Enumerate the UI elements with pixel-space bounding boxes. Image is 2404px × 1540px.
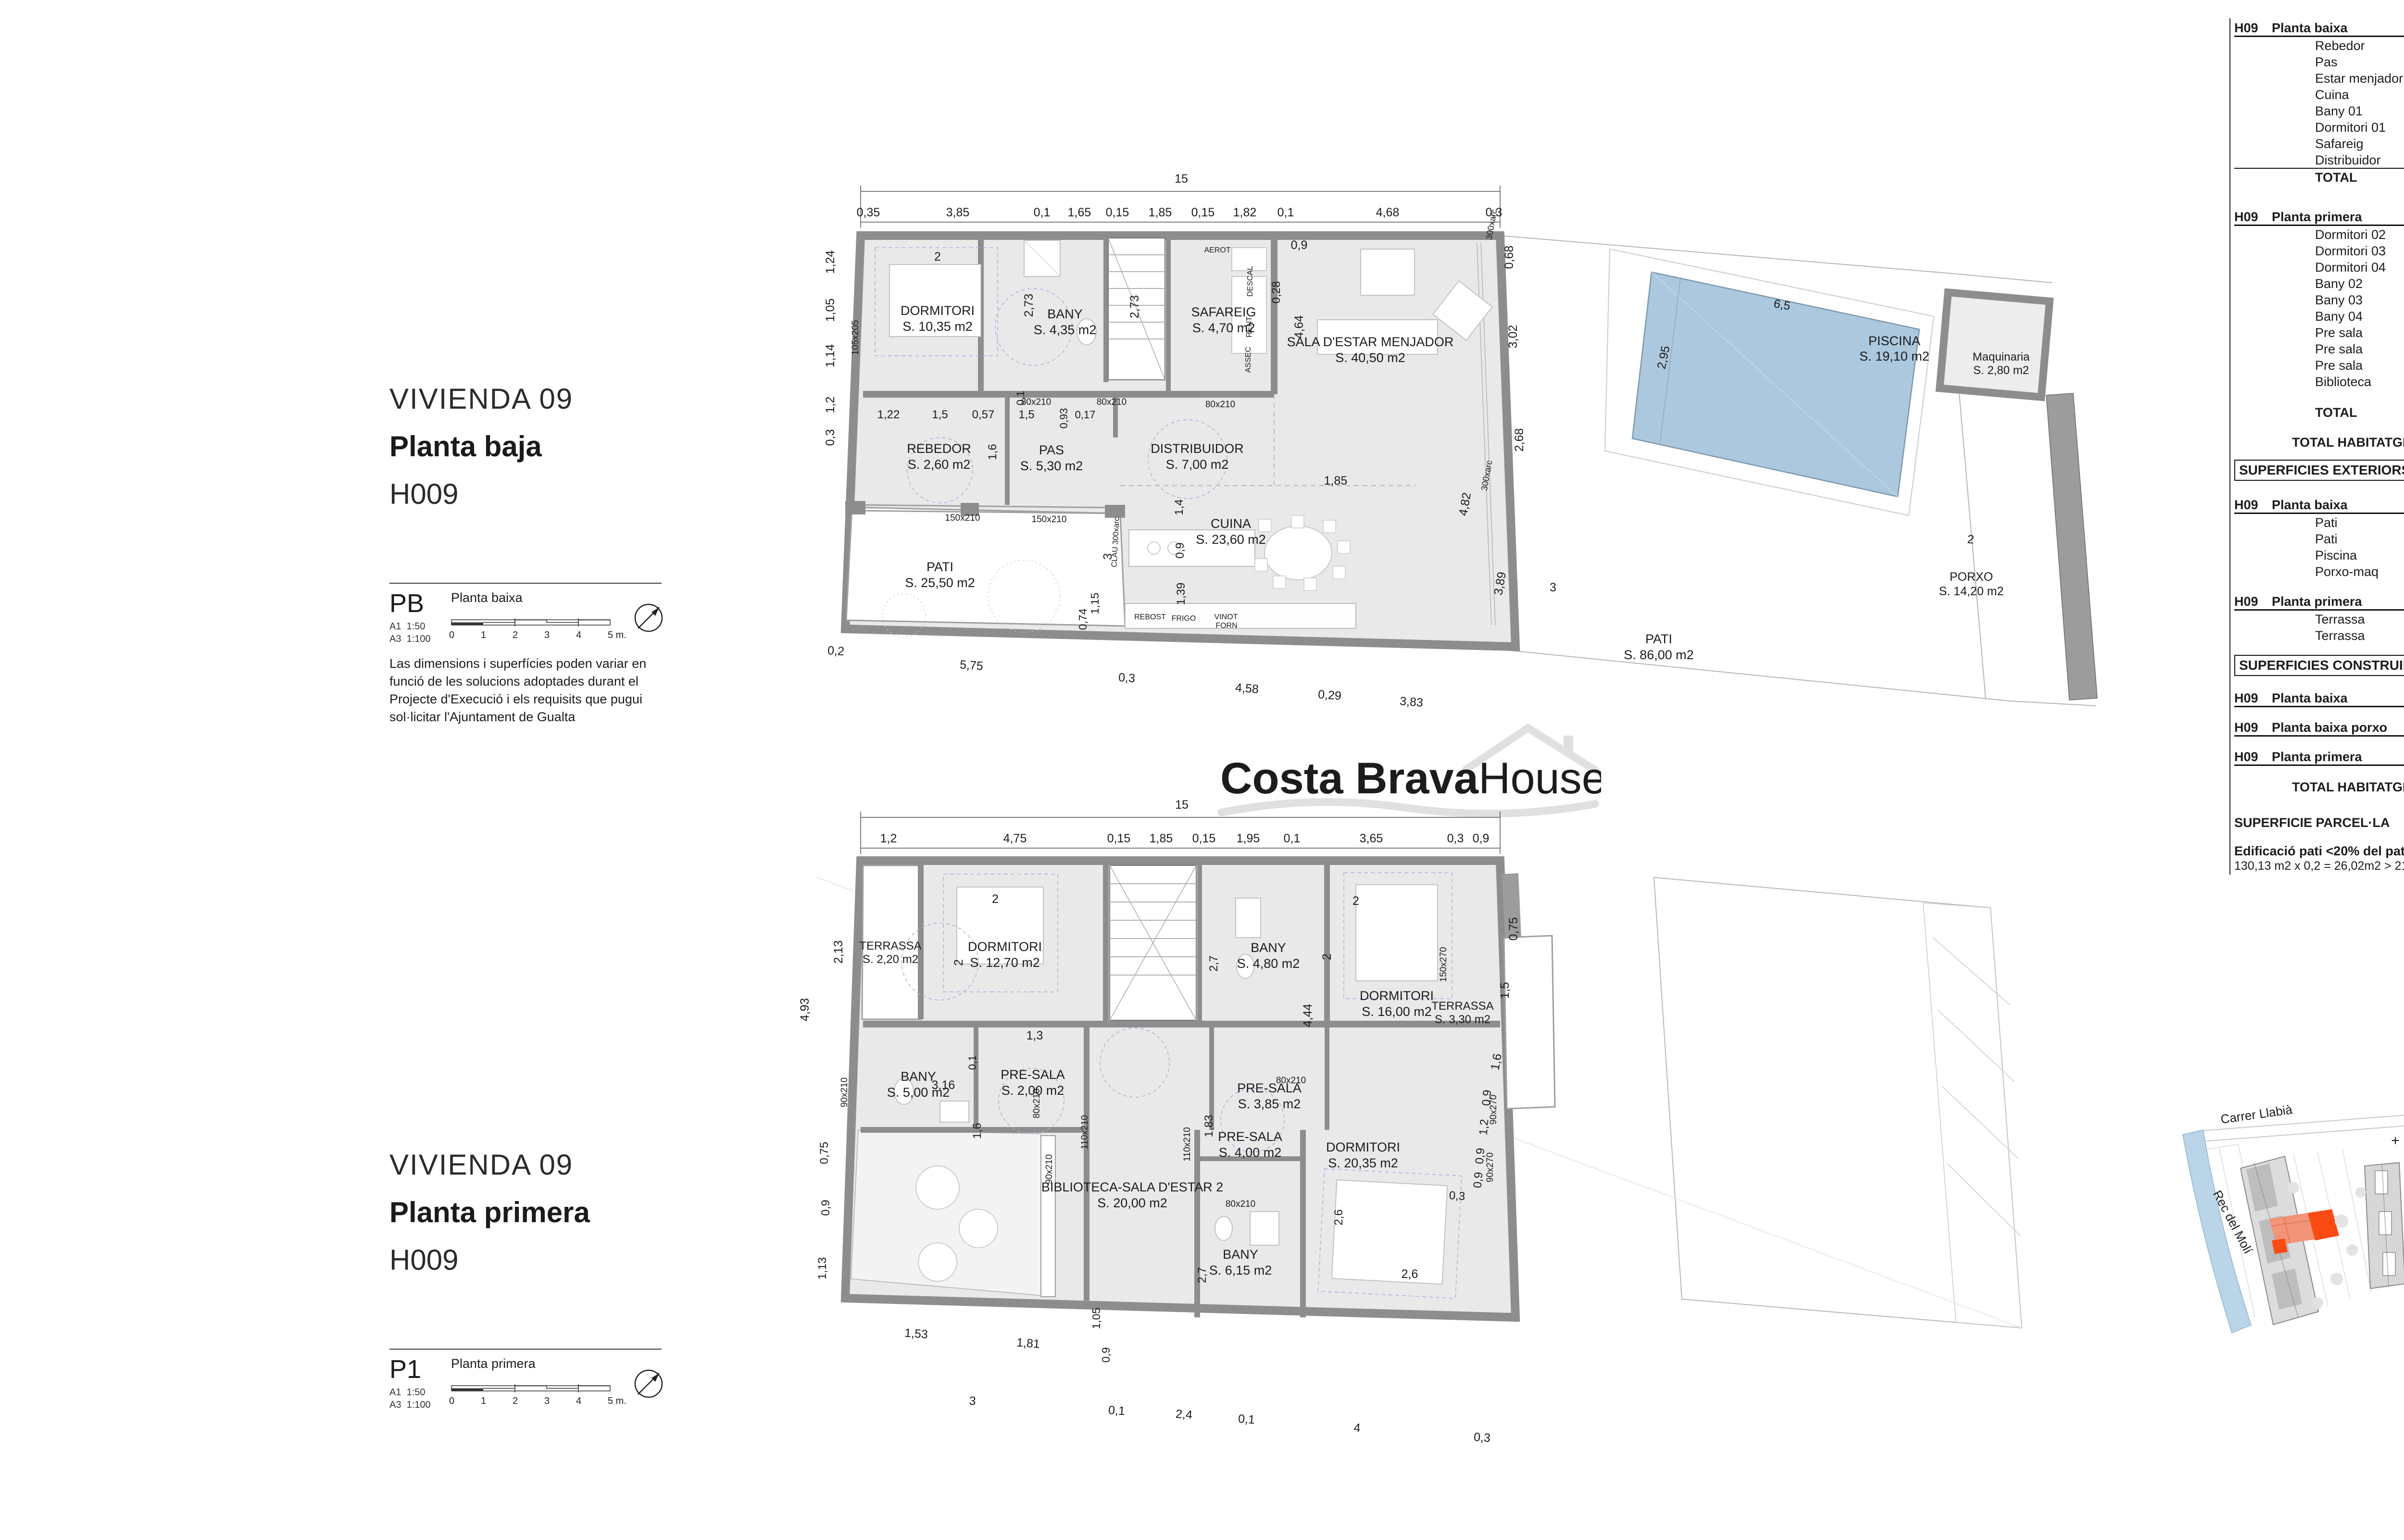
dim-label: 0,15	[1107, 832, 1131, 845]
room-label: DISTRIBUIDOR	[1151, 441, 1244, 456]
door-size-label: 80x210	[1021, 397, 1051, 407]
dim-label: 1,5	[932, 408, 948, 421]
dim-label: 1,13	[816, 1257, 829, 1280]
table-gap	[2234, 766, 2404, 778]
table-section-header: H09Planta baixa	[2234, 495, 2404, 514]
table-row: Porxo-maq17,00	[2234, 563, 2404, 579]
scale-tick: 1	[481, 1396, 486, 1407]
scale-bar	[451, 617, 614, 628]
table-section-header: H09Planta primera	[2234, 592, 2404, 611]
dim-label: 0,57	[972, 408, 995, 421]
floor-plan-planta-primera: TERRASSAS. 2,20 m2DORMITORIS. 12,70 m2BA…	[817, 793, 2116, 1466]
scale-a1-ratio: 1:50	[407, 621, 426, 632]
north-arrow-icon	[633, 1368, 664, 1400]
scale-name: Planta baixa	[451, 590, 523, 605]
window-size-label: 150x210	[1032, 514, 1067, 525]
table-gap	[2234, 830, 2404, 844]
dim-label: 4,64	[1292, 315, 1306, 339]
dim-label: 0,3	[1449, 1189, 1465, 1203]
dim-label: 1,83	[1202, 1115, 1215, 1138]
floor-plan-planta-baja: DORMITORIS. 10,35 m2BANYS. 4,35 m2SAFARE…	[817, 168, 2116, 726]
dim-label: 2	[934, 250, 941, 263]
dim-label: 2,73	[1022, 294, 1036, 317]
table-section-header: H09Planta baixa	[2234, 18, 2404, 37]
room-label: PRE-SALA	[1218, 1129, 1282, 1144]
room-area: S. 3,30 m2	[1435, 1013, 1490, 1026]
scale-tick: 5 m.	[608, 630, 626, 641]
room-area: S. 5,30 m2	[1020, 459, 1083, 473]
dim-label: 1,24	[824, 250, 837, 274]
window-size-label: 90x210	[1044, 1154, 1054, 1184]
dim-label: 1,4	[1173, 499, 1186, 515]
table-gap	[2234, 579, 2404, 592]
door-size-label: 80x210	[1097, 397, 1127, 407]
room-area: S. 16,00 m2	[1362, 1004, 1432, 1019]
info-block-planta-baja: VIVIENDA 09 Planta baja H009 PB Planta b…	[389, 382, 664, 739]
room-area: S. 6,15 m2	[1209, 1263, 1272, 1277]
unit-code: H009	[389, 1243, 664, 1277]
dim-label: 0,28	[1270, 281, 1283, 304]
dim-label: 0,3	[1473, 1430, 1491, 1445]
room-label: DORMITORI	[968, 939, 1042, 954]
dim-label: 3,65	[1360, 832, 1383, 845]
dim-label: 0,75	[1507, 917, 1520, 941]
scale-a1: A1	[389, 621, 401, 632]
dim-label: 1,2	[880, 832, 897, 845]
dim-label: 3	[1550, 581, 1556, 594]
room-label: PATI	[1645, 632, 1672, 646]
room-label: SALA D'ESTAR MENJADOR	[1287, 335, 1454, 349]
window-size-label: 150x270	[1439, 947, 1449, 982]
appliance-label: DESCAL	[1246, 266, 1254, 297]
dim-label: 4,75	[1003, 832, 1027, 845]
dim-label: 3,83	[1399, 694, 1424, 709]
scale-tick: 2	[513, 1396, 518, 1407]
unit-code: H009	[389, 477, 664, 511]
scale-tag: PB	[389, 588, 424, 618]
dim-label: 1,6	[971, 1123, 984, 1139]
table-built-area-row: H09Planta baixa porxo21,90	[2234, 718, 2404, 737]
room-label: CUINA	[1211, 516, 1251, 531]
room-area: S. 4,00 m2	[1219, 1145, 1282, 1160]
dim-label: 0,68	[1502, 246, 1516, 269]
room-label: PAS	[1039, 443, 1064, 457]
appliance-label: FORN	[1215, 622, 1237, 630]
table-gap	[2234, 450, 2404, 460]
window-size-label: 90x270	[1489, 1095, 1499, 1125]
room-label: PRE-SALA	[1001, 1067, 1065, 1082]
dim-label: 3	[969, 1394, 977, 1408]
door-size-label: 80x210	[1032, 1089, 1042, 1118]
table-built-area-row: H09Planta baixa123,65	[2234, 689, 2404, 707]
table-row: Pas5,30	[2234, 53, 2404, 70]
table-row: Terrassa3,30	[2234, 627, 2404, 643]
room-area: S. 3,85 m2	[1238, 1097, 1301, 1111]
room-area: S. 2,60 m2	[908, 457, 971, 472]
room-label: DORMITORI	[1326, 1140, 1400, 1154]
table-gap	[2234, 389, 2404, 404]
table-total-row: TOTAL94,85	[2234, 404, 2404, 420]
table-grand-total-row: TOTAL HABITATGE271,90	[2234, 778, 2404, 795]
dim-label: 2	[1352, 894, 1359, 908]
window-size-label: 90x210	[839, 1077, 850, 1107]
north-arrow-icon	[633, 602, 664, 634]
room-area: S. 7,00 m2	[1166, 457, 1229, 472]
table-row: Cuina23,60	[2234, 86, 2404, 102]
table-row: Pre sala4,00	[2234, 357, 2404, 373]
dim-label: 2,7	[1196, 1267, 1209, 1283]
scale-tick: 1	[481, 630, 486, 641]
dim-label: 6,5	[1773, 297, 1791, 313]
dim-label: 1,14	[824, 344, 837, 368]
table-row: Terrassa2,20	[2234, 611, 2404, 627]
table-row: Bany 034,80	[2234, 291, 2404, 308]
table-parcel-row: SUPERFICIE PARCEL·LA278,25	[2234, 814, 2404, 830]
room-label: Maquinaria	[1973, 351, 2030, 363]
scale-tick: 3	[544, 630, 550, 641]
dim-label: 1,39	[1175, 583, 1188, 605]
room-area: S. 19,10 m2	[1859, 349, 1929, 363]
room-label: BANY	[901, 1069, 936, 1084]
window-size-label: 90x270	[1485, 1152, 1495, 1182]
dim-label: 2,13	[832, 940, 845, 964]
dim-label: 2,73	[1128, 295, 1141, 319]
terrassa-2	[1504, 936, 1555, 1109]
project-title: VIVIENDA 09	[389, 1148, 664, 1181]
dim-label: 0,9	[1471, 1172, 1486, 1189]
table-row: Bany 046,15	[2234, 308, 2404, 324]
areas-table: H09Planta baixaRebedor2,60Pas5,30Estar m…	[2229, 18, 2404, 875]
scale-a1-ratio: 1:50	[407, 1387, 426, 1398]
dim-label: 1,2	[824, 397, 837, 413]
site-plan: Carrer LlabiàRec del MolíCarrer Castella…	[2173, 1077, 2404, 1404]
floor-title: Planta primera	[389, 1196, 664, 1229]
room-area: S. 25,50 m2	[905, 576, 975, 590]
window-size-label: 105x205	[851, 320, 861, 355]
table-row: Biblioteca20,00	[2234, 373, 2404, 389]
project-title: VIVIENDA 09	[389, 382, 664, 415]
dim-label: 1,85	[1149, 206, 1172, 219]
dim-label: 4,58	[1235, 681, 1259, 696]
scale-block-pb: PB Planta baixa A1 1:50 A3 1:100 012345 …	[389, 583, 662, 646]
table-gap	[2234, 481, 2404, 495]
scale-tag: P1	[389, 1354, 421, 1384]
room-area: S. 2,80 m2	[1973, 364, 2029, 377]
dim-label: 0,2	[827, 644, 845, 658]
table-row: Dormitori 0320,35	[2234, 242, 2404, 259]
dim-label: 1,53	[904, 1326, 928, 1341]
dim-label: 1,65	[1068, 206, 1091, 219]
scale-tick: 4	[576, 1396, 581, 1407]
dim-label: 5,75	[959, 658, 984, 673]
scale-ticks: 012345 m.	[451, 630, 643, 641]
scale-a3: A3	[389, 634, 401, 644]
room-label: BIBLIOTECA-SALA D'ESTAR 2	[1041, 1180, 1223, 1194]
dim-label: 0,15	[1106, 206, 1129, 219]
sheet-canvas: VIVIENDA 09 Planta baja H009 PB Planta b…	[0, 0, 2404, 1540]
dim-label: 2	[992, 892, 999, 906]
street-label: Carrer Llabià	[2220, 1102, 2294, 1127]
appliance-label: AEROT	[1204, 246, 1230, 254]
disclaimer-text: Las dimensions i superfícies poden varia…	[389, 655, 664, 726]
floor-title: Planta baja	[389, 430, 664, 463]
door-size-label: 80x210	[1226, 1199, 1255, 1209]
scale-tick: 5 m.	[608, 1396, 626, 1407]
table-box-header: SUPERFICIES EXTERIORS	[2234, 460, 2404, 481]
table-row: Bany 014,35	[2234, 102, 2404, 119]
room-area: S. 20,00 m2	[1097, 1196, 1167, 1210]
scale-a3-ratio: 1:100	[407, 634, 431, 644]
dim-label: 1,22	[877, 408, 900, 421]
dim-label: 0,9	[1174, 542, 1187, 558]
table-row: Distribuidor7,00	[2234, 151, 2404, 168]
dim-label: 0,3	[1447, 832, 1464, 845]
table-row: Pre sala2,00	[2234, 324, 2404, 340]
dim-label: 1,81	[1016, 1336, 1040, 1351]
dim-label: 0,74	[1077, 608, 1089, 630]
dim-label: 2,4	[1175, 1407, 1193, 1422]
door-size-label: 110x210	[1080, 1115, 1090, 1150]
dim-label: 0,17	[1075, 409, 1096, 421]
table-row: Safareig4,70	[2234, 135, 2404, 151]
table-gap	[2234, 420, 2404, 434]
table-row: Bany 025,00	[2234, 275, 2404, 291]
room-label: TERRASSA	[1431, 1000, 1493, 1013]
staircase	[1110, 865, 1196, 1020]
table-grand-total-row: TOTAL HABITATGE193,25	[2234, 434, 2404, 450]
dim-label: 0,35	[857, 206, 880, 219]
dim-label: 2	[952, 959, 965, 966]
dim-label: 0,9	[1291, 238, 1308, 252]
scale-tick: 0	[449, 630, 454, 641]
table-row: Estar menjador40,50	[2234, 70, 2404, 86]
dim-label: 1,5	[1498, 982, 1512, 999]
table-gap	[2234, 707, 2404, 718]
scale-a3: A3	[389, 1400, 401, 1410]
dim-label: 3,16	[932, 1078, 955, 1092]
scale-a1: A1	[389, 1387, 401, 1398]
dim-label: 3,02	[1506, 325, 1520, 349]
dim-label: 3,85	[946, 206, 970, 219]
door-size-label: 80x210	[1205, 400, 1235, 410]
dim-label: 0,1	[1284, 832, 1301, 845]
table-row: Piscina19,10	[2234, 547, 2404, 563]
dim-label: 0,9	[1473, 832, 1490, 845]
dim-label: 4,68	[1376, 206, 1400, 219]
appliance-label: VINOT	[1215, 613, 1238, 621]
room-area: S. 40,50 m2	[1335, 351, 1405, 365]
room-area: S. 14,20 m2	[1939, 585, 2004, 598]
dim-label: 0,1	[1238, 1412, 1255, 1427]
dim-label: 15	[1175, 172, 1188, 186]
dim-label: 2,68	[1513, 428, 1526, 452]
door-size-label: 110x210	[1182, 1127, 1192, 1162]
dim-label: 0,1	[1277, 206, 1294, 219]
dim-label: 2	[1320, 953, 1334, 960]
room-label: PORXO	[1950, 570, 1993, 584]
table-row: Pati86,00	[2234, 530, 2404, 547]
room-area: S. 4,35 m2	[1034, 323, 1097, 337]
table-row: Pati25,50	[2234, 514, 2404, 530]
table-gap	[2234, 676, 2404, 689]
scale-a3-ratio: 1:100	[407, 1400, 431, 1410]
scale-tick: 2	[513, 630, 518, 641]
room-area: S. 20,35 m2	[1328, 1156, 1398, 1170]
scale-ratios: A1 1:50 A3 1:100	[389, 620, 431, 645]
dim-label: 1,82	[1233, 206, 1257, 219]
room-label: BANY	[1047, 307, 1083, 321]
table-total-row: TOTAL98,40	[2234, 168, 2404, 185]
dim-label: 1,85	[1150, 832, 1173, 845]
room-area: S. 4,80 m2	[1237, 956, 1300, 971]
table-box-header: SUPERFICIES CONSTRUIDES	[2234, 655, 2404, 676]
room-label: TERRASSA	[859, 939, 921, 952]
table-row: Dormitori 0212,70	[2234, 226, 2404, 242]
dim-label: 0,15	[1191, 206, 1215, 219]
dim-label: 0,29	[1317, 688, 1342, 702]
dim-label: 2	[1967, 532, 1975, 546]
room-area: S. 23,60 m2	[1196, 532, 1266, 547]
appliance-label: ASSEC	[1244, 347, 1252, 373]
scale-tick: 4	[576, 630, 581, 641]
dim-label: 0,3	[824, 429, 837, 446]
scale-ticks: 012345 m.	[451, 1396, 643, 1407]
table-gap	[2234, 737, 2404, 747]
dim-label: 0,3	[1118, 671, 1136, 685]
room-area: S. 12,70 m2	[970, 955, 1040, 970]
room-label: REBEDOR	[907, 441, 971, 456]
dim-label: 4	[1353, 1421, 1361, 1435]
table-note: 130,13 m2 x 0,2 = 26,02m2 > 21,90m2	[2234, 859, 2404, 875]
dim-label: 2,6	[1402, 1267, 1418, 1281]
dim-label: 1,6	[986, 444, 999, 460]
dim-label: 4,93	[798, 998, 812, 1022]
table-gap	[2234, 795, 2404, 814]
dim-label: 1,6	[1488, 1052, 1504, 1071]
scale-block-p1: P1 Planta primera A1 1:50 A3 1:100 01234…	[389, 1349, 662, 1412]
dim-label: 0,1	[966, 1055, 978, 1070]
dim-label: 1,05	[1090, 1308, 1102, 1329]
room-area: S. 86,00 m2	[1624, 648, 1694, 662]
table-built-area-row: H09Planta primera126,35	[2234, 747, 2404, 766]
window-size-label: 150x210	[945, 513, 980, 523]
dim-label: 0,1	[1034, 206, 1051, 219]
table-gap	[2234, 185, 2404, 207]
dim-label: 15	[1175, 798, 1189, 812]
table-row: Dormitori 0416,00	[2234, 259, 2404, 275]
table-section-header: H09Planta primera	[2234, 207, 2404, 226]
dim-label: 0,93	[1058, 408, 1070, 429]
table-gap	[2234, 643, 2404, 655]
dim-label: 1,5	[1018, 408, 1034, 421]
dim-label: 0,15	[1192, 832, 1216, 845]
scale-name: Planta primera	[451, 1356, 536, 1371]
dim-label: 1,95	[1237, 832, 1260, 845]
room-label: PATI	[927, 560, 953, 574]
dim-label: 4,44	[1301, 1004, 1315, 1027]
dim-label: 1,85	[1324, 474, 1348, 488]
dim-label: 1,05	[824, 299, 837, 322]
dim-label: 0,75	[818, 1142, 831, 1164]
dim-label: 0,9	[819, 1200, 832, 1215]
appliance-label: REBOST	[1134, 613, 1166, 621]
room-label: BANY	[1223, 1247, 1258, 1262]
dim-label: 2,7	[1207, 955, 1220, 971]
appliance-label: FRIGO	[1172, 614, 1196, 623]
table-row: Pre sala3,85	[2234, 340, 2404, 357]
dim-label: 1,3	[1027, 1029, 1043, 1042]
dim-label: 0,9	[1100, 1347, 1112, 1363]
table-note: Edificació pati <20% del pati	[2234, 844, 2404, 859]
table-row: Rebedor2,60	[2234, 37, 2404, 53]
pati-courtyard	[846, 507, 1125, 626]
appliance-label: RENT	[1245, 316, 1253, 338]
room-label: PISCINA	[1868, 334, 1920, 348]
room-label: BANY	[1251, 940, 1286, 955]
scale-tick: 0	[449, 1396, 454, 1407]
scale-ratios: A1 1:50 A3 1:100	[389, 1386, 431, 1411]
door-size-label: 80x210	[1276, 1076, 1306, 1086]
dim-label: 1,15	[1089, 593, 1101, 614]
room-area: S. 2,20 m2	[863, 953, 918, 966]
scale-tick: 3	[544, 1396, 550, 1407]
dim-label: 0,1	[1108, 1403, 1126, 1418]
room-label: DORMITORI	[1360, 989, 1434, 1003]
scale-bar	[451, 1383, 614, 1394]
room-area: S. 10,35 m2	[902, 319, 973, 334]
info-block-planta-primera: VIVIENDA 09 Planta primera H009 P1 Plant…	[389, 1148, 664, 1412]
room-label: DORMITORI	[901, 303, 975, 318]
dim-label: 2,6	[1332, 1209, 1345, 1225]
survey-mark: +	[2391, 1133, 2400, 1149]
table-row: Dormitori 0110,35	[2234, 119, 2404, 135]
